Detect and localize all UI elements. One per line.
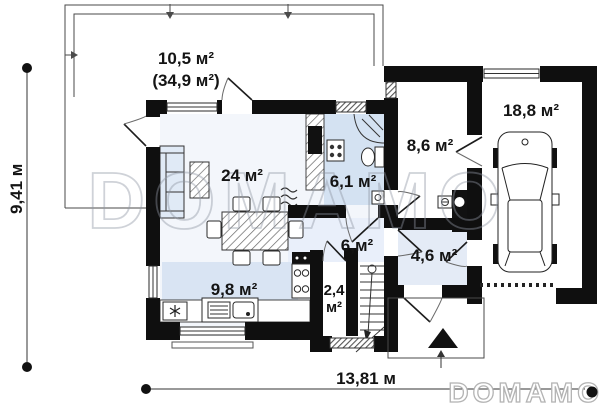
window-kitchen-left bbox=[149, 266, 157, 298]
window-utility bbox=[386, 82, 396, 98]
label-utility-room: 8,6 м² bbox=[407, 136, 454, 155]
label-stair-hall-1: 2,4 bbox=[324, 282, 346, 299]
floor-plan-canvas: 9,41 м 13,81 м DOMAMO 10,5 м² (34,9 м²) … bbox=[0, 0, 614, 409]
stove-icon bbox=[292, 252, 311, 298]
entrance-arrow-icon bbox=[437, 350, 445, 357]
label-bathroom: 6,1 м² bbox=[330, 172, 377, 191]
label-living-room: 24 м² bbox=[221, 166, 263, 185]
floor-plan: 9,41 м 13,81 м DOMAMO 10,5 м² (34,9 м²) … bbox=[0, 0, 614, 409]
door-entrance bbox=[404, 298, 442, 322]
roof-slope-arrow-icon bbox=[166, 12, 174, 19]
fridge-snowflake-icon bbox=[163, 302, 187, 320]
door-terrace-top bbox=[222, 78, 252, 100]
label-garage: 18,8 м² bbox=[503, 101, 559, 120]
fireplace-icon bbox=[308, 126, 322, 154]
door-terrace-left bbox=[124, 116, 146, 146]
label-stair-hall-2: м² bbox=[326, 299, 342, 316]
label-vestibule: 4,6 м² bbox=[411, 246, 458, 265]
label-kitchen: 9,8 м² bbox=[211, 280, 258, 299]
brand-logo: DOMAMO bbox=[448, 377, 603, 408]
dimension-bottom-label: 13,81 м bbox=[336, 369, 396, 388]
label-terrace-total: (34,9 м²) bbox=[152, 71, 219, 90]
window-bathroom bbox=[336, 102, 366, 112]
dimension-left-label: 9,41 м bbox=[7, 164, 26, 214]
window-stairwell bbox=[330, 338, 374, 348]
entrance-triangle-icon bbox=[428, 328, 458, 348]
watermark-text: DOMAMO bbox=[87, 156, 508, 245]
kitchen-sink-icon bbox=[202, 298, 258, 322]
label-hall: 6,м² bbox=[341, 236, 374, 255]
brand-logo-text: DOMAMO bbox=[448, 377, 603, 408]
cooker-hood-icon bbox=[292, 252, 311, 264]
label-terrace-area: 10,5 м² bbox=[158, 49, 214, 68]
window-kitchen-bottom bbox=[172, 327, 253, 348]
dimension-left: 9,41 м bbox=[7, 63, 32, 372]
garage-door bbox=[484, 69, 539, 78]
roof-slope-arrow-icon bbox=[284, 12, 292, 19]
brand-logo-dot-icon bbox=[587, 387, 598, 398]
window-living-top bbox=[167, 103, 217, 111]
